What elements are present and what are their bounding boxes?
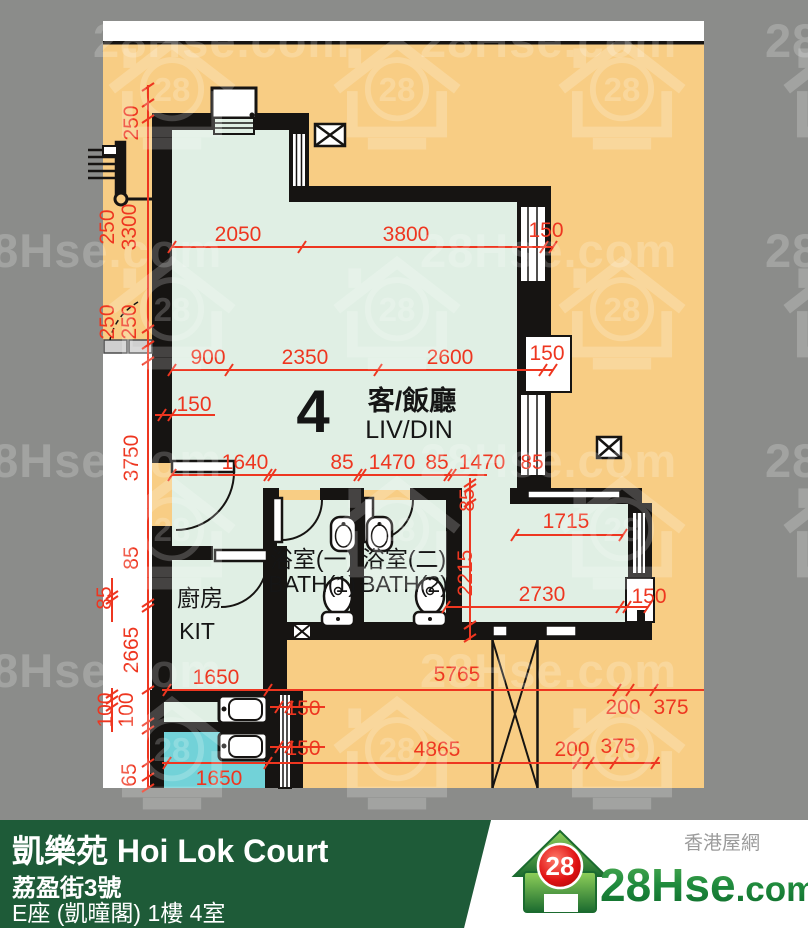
watermark-text: 28Hse.com: [765, 434, 808, 487]
room-label: BATH(1): [268, 571, 356, 597]
dim-label: 150: [285, 737, 320, 760]
logo-badge-number: 28: [546, 851, 575, 881]
logo-house-door: [544, 894, 578, 912]
dim-label: 150: [285, 697, 320, 720]
room-label: 4: [296, 378, 330, 445]
dim-label: 2350: [282, 346, 329, 369]
room-label: KIT: [179, 618, 215, 644]
floorplan-image: 28: [0, 0, 808, 928]
dim-label: 2730: [519, 583, 566, 606]
window-bottom-1: [493, 626, 507, 636]
dim-label: 375: [653, 696, 688, 719]
dim-label: 1470: [369, 451, 416, 474]
room-label: 浴室(一): [270, 546, 354, 572]
dim-label: 150: [529, 342, 564, 365]
duct-symbol-top: [315, 124, 345, 146]
logo-tagline: 香港屋網: [684, 832, 760, 854]
dim-label: 2215: [454, 550, 477, 597]
dim-label: 100: [94, 692, 117, 727]
window-top-left: [292, 133, 306, 187]
duct-symbol-bath: [293, 624, 311, 639]
dim-label: 85: [93, 586, 116, 609]
watermark-text: 28Hse.com: [420, 434, 677, 487]
dim-label: 150: [176, 393, 211, 416]
estate-title: 凱樂苑 Hoi Lok Court: [12, 833, 329, 869]
utility1-sink: [219, 696, 267, 723]
dim-label: 1640: [222, 451, 269, 474]
watermark-text: 28Hse.com: [420, 644, 677, 697]
floorplan-page: 28: [0, 0, 808, 928]
logo-site-suffix: .com: [736, 870, 808, 909]
room-label: 客/飯廳: [368, 385, 457, 416]
dim-label: 85: [456, 488, 479, 511]
footer: 凱樂苑 Hoi Lok Court 荔盈街3號 E座 (凱曈閣) 1樓 4室 2…: [0, 820, 808, 928]
estate-unit: E座 (凱曈閣) 1樓 4室: [12, 900, 225, 926]
watermark-text: 28Hse.com: [0, 434, 222, 487]
watermark-text: 28Hse.com: [0, 644, 222, 697]
dim-label: 85: [330, 451, 353, 474]
logo-site-main: 28Hse: [600, 859, 736, 911]
window-bottom-2: [546, 626, 576, 636]
estate-address: 荔盈街3號: [12, 874, 121, 902]
